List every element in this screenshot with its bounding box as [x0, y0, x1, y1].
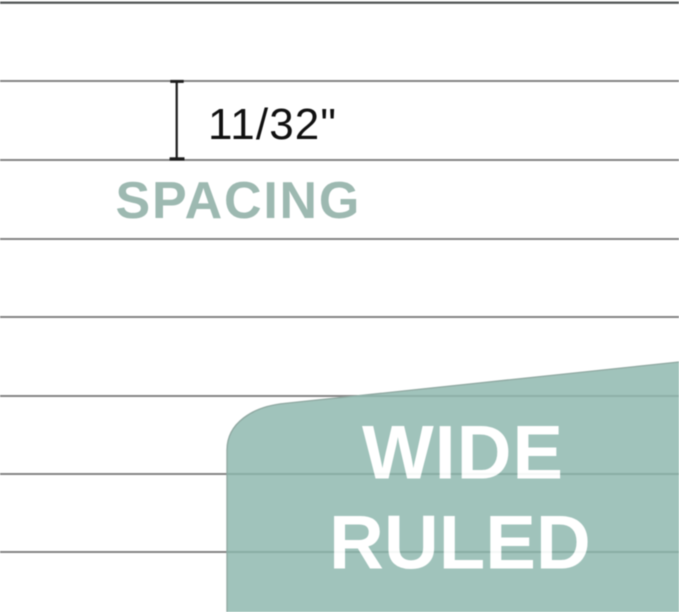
svg-text:RULED: RULED — [329, 501, 591, 586]
svg-text:11/32": 11/32" — [208, 100, 337, 149]
svg-text:WIDE: WIDE — [362, 411, 564, 496]
svg-text:SPACING: SPACING — [116, 172, 362, 230]
